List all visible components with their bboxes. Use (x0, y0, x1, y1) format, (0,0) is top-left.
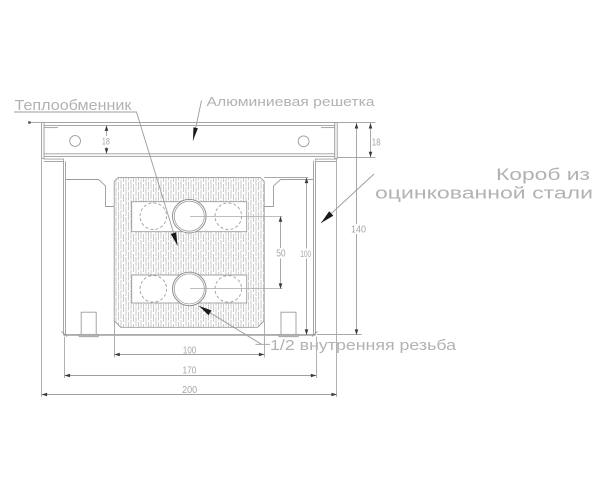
svg-text:Короб из: Короб из (496, 166, 590, 184)
svg-text:18: 18 (102, 136, 110, 146)
svg-text:18: 18 (372, 138, 381, 149)
svg-text:1/2 внутренняя резьба: 1/2 внутренняя резьба (270, 338, 457, 354)
svg-text:100: 100 (183, 344, 196, 356)
svg-text:200: 200 (182, 384, 197, 396)
svg-text:100: 100 (300, 249, 311, 259)
svg-text:50: 50 (276, 248, 286, 260)
svg-text:170: 170 (183, 364, 197, 376)
svg-text:Алюминиевая решетка: Алюминиевая решетка (207, 94, 376, 109)
svg-text:140: 140 (351, 224, 366, 236)
svg-text:оцинкованной стали: оцинкованной стали (375, 185, 593, 203)
